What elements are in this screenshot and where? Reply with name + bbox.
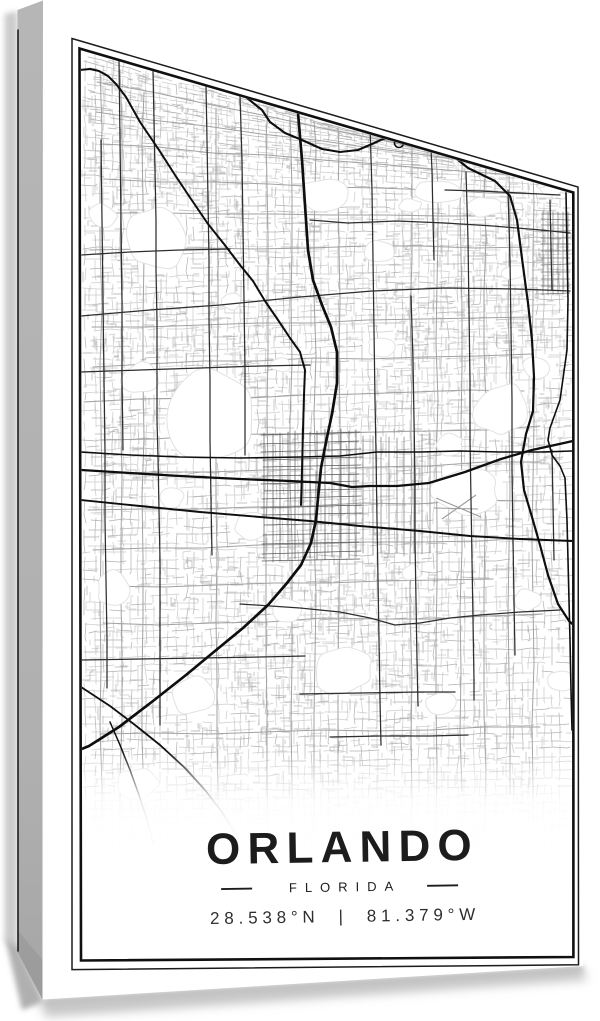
svg-text:ORLANDO: ORLANDO	[206, 821, 480, 874]
svg-text:FLORIDA: FLORIDA	[289, 879, 402, 896]
